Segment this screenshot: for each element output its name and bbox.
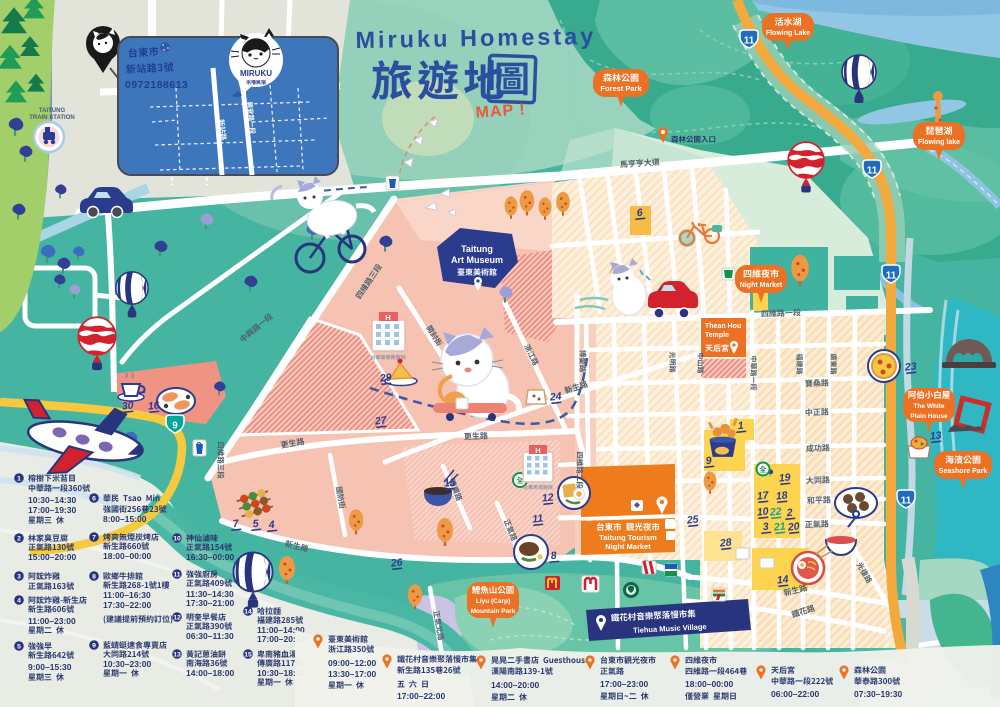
svg-text:MIRUKU: MIRUKU xyxy=(240,69,272,78)
svg-text:15:00–20:00: 15:00–20:00 xyxy=(28,552,76,562)
svg-text:11:00–16:30: 11:00–16:30 xyxy=(103,590,151,600)
svg-text:18:00–00:00: 18:00–00:00 xyxy=(103,551,151,561)
svg-text:07:30–19:30: 07:30–19:30 xyxy=(854,689,902,699)
svg-text:11: 11 xyxy=(867,166,878,177)
svg-text:11:00–23:00: 11:00–23:00 xyxy=(28,616,76,626)
svg-text:17:30–22:00: 17:30–22:00 xyxy=(103,600,151,610)
svg-text:10: 10 xyxy=(173,535,181,542)
svg-text:H: H xyxy=(385,313,390,322)
svg-text:Mountain Park: Mountain Park xyxy=(471,608,516,615)
svg-text:MAP !: MAP ! xyxy=(475,101,526,121)
svg-text:Temple: Temple xyxy=(705,332,729,339)
svg-text:5: 5 xyxy=(17,643,21,650)
svg-text:Forest Park: Forest Park xyxy=(600,84,642,93)
svg-text:17:00–19:30: 17:00–19:30 xyxy=(28,505,76,515)
svg-text:06:30–11:30: 06:30–11:30 xyxy=(186,631,234,641)
svg-text:Taitung: Taitung xyxy=(461,244,493,254)
svg-text:6: 6 xyxy=(92,495,96,502)
svg-text:2: 2 xyxy=(785,507,793,520)
svg-text:TAITUNG: TAITUNG xyxy=(39,108,66,114)
svg-text:3: 3 xyxy=(17,573,21,580)
svg-text:Miruku Homestay: Miruku Homestay xyxy=(355,23,596,53)
svg-text:The White: The White xyxy=(913,403,944,410)
svg-text:Taitung Tourism: Taitung Tourism xyxy=(599,533,657,542)
svg-text:14:00–20:00: 14:00–20:00 xyxy=(491,680,539,690)
svg-text:12: 12 xyxy=(173,614,181,621)
svg-text:09:00–12:00: 09:00–12:00 xyxy=(328,658,376,668)
svg-text:9:00–15:30: 9:00–15:30 xyxy=(28,662,72,672)
svg-text:8:00–15:00: 8:00–15:00 xyxy=(103,514,147,524)
svg-text:10:30–14:30: 10:30–14:30 xyxy=(28,495,76,505)
svg-text:Seashore Park: Seashore Park xyxy=(939,468,988,475)
svg-text:15: 15 xyxy=(244,651,252,658)
svg-text:9: 9 xyxy=(92,642,96,649)
svg-text:16:30–00:00: 16:30–00:00 xyxy=(186,552,234,562)
svg-text:17:00–22:00: 17:00–22:00 xyxy=(397,691,445,701)
svg-text:Plain House: Plain House xyxy=(910,413,948,420)
svg-text:14:00–18:00: 14:00–18:00 xyxy=(186,668,234,678)
svg-text:17:00–23:00: 17:00–23:00 xyxy=(600,679,648,689)
svg-text:Flowing Lake: Flowing Lake xyxy=(766,30,810,37)
svg-text:18:00–00:00: 18:00–00:00 xyxy=(685,679,733,689)
svg-text:Thean Hou: Thean Hou xyxy=(705,323,741,330)
svg-text:2: 2 xyxy=(17,535,21,542)
svg-text:11: 11 xyxy=(901,496,912,507)
svg-text:4: 4 xyxy=(267,519,275,532)
svg-text:1: 1 xyxy=(17,475,21,482)
svg-text:10:30–23:00: 10:30–23:00 xyxy=(103,659,151,669)
svg-text:Night Market: Night Market xyxy=(740,282,783,289)
svg-text:17:30–21:00: 17:30–21:00 xyxy=(186,598,234,608)
svg-text:9: 9 xyxy=(172,421,178,432)
svg-text:14: 14 xyxy=(244,608,252,615)
svg-text:0972188613: 0972188613 xyxy=(125,79,188,91)
svg-text:11: 11 xyxy=(173,571,180,578)
svg-text:11: 11 xyxy=(744,36,755,47)
svg-text:H: H xyxy=(535,446,540,455)
svg-text:Flowing lake: Flowing lake xyxy=(918,139,960,146)
svg-text:Art Museum: Art Museum xyxy=(451,255,503,265)
svg-text:13:30–17:00: 13:30–17:00 xyxy=(328,669,376,679)
svg-text:11: 11 xyxy=(886,271,897,282)
svg-text:13: 13 xyxy=(173,651,181,658)
svg-text:Night Market: Night Market xyxy=(605,542,651,551)
svg-text:06:00–22:00: 06:00–22:00 xyxy=(771,689,819,699)
svg-text:7: 7 xyxy=(92,534,96,541)
svg-text:8: 8 xyxy=(92,573,96,580)
svg-text:TRAIN STATION: TRAIN STATION xyxy=(29,115,74,121)
svg-text:Liyu (Carp): Liyu (Carp) xyxy=(476,598,510,605)
svg-text:4: 4 xyxy=(17,597,21,604)
